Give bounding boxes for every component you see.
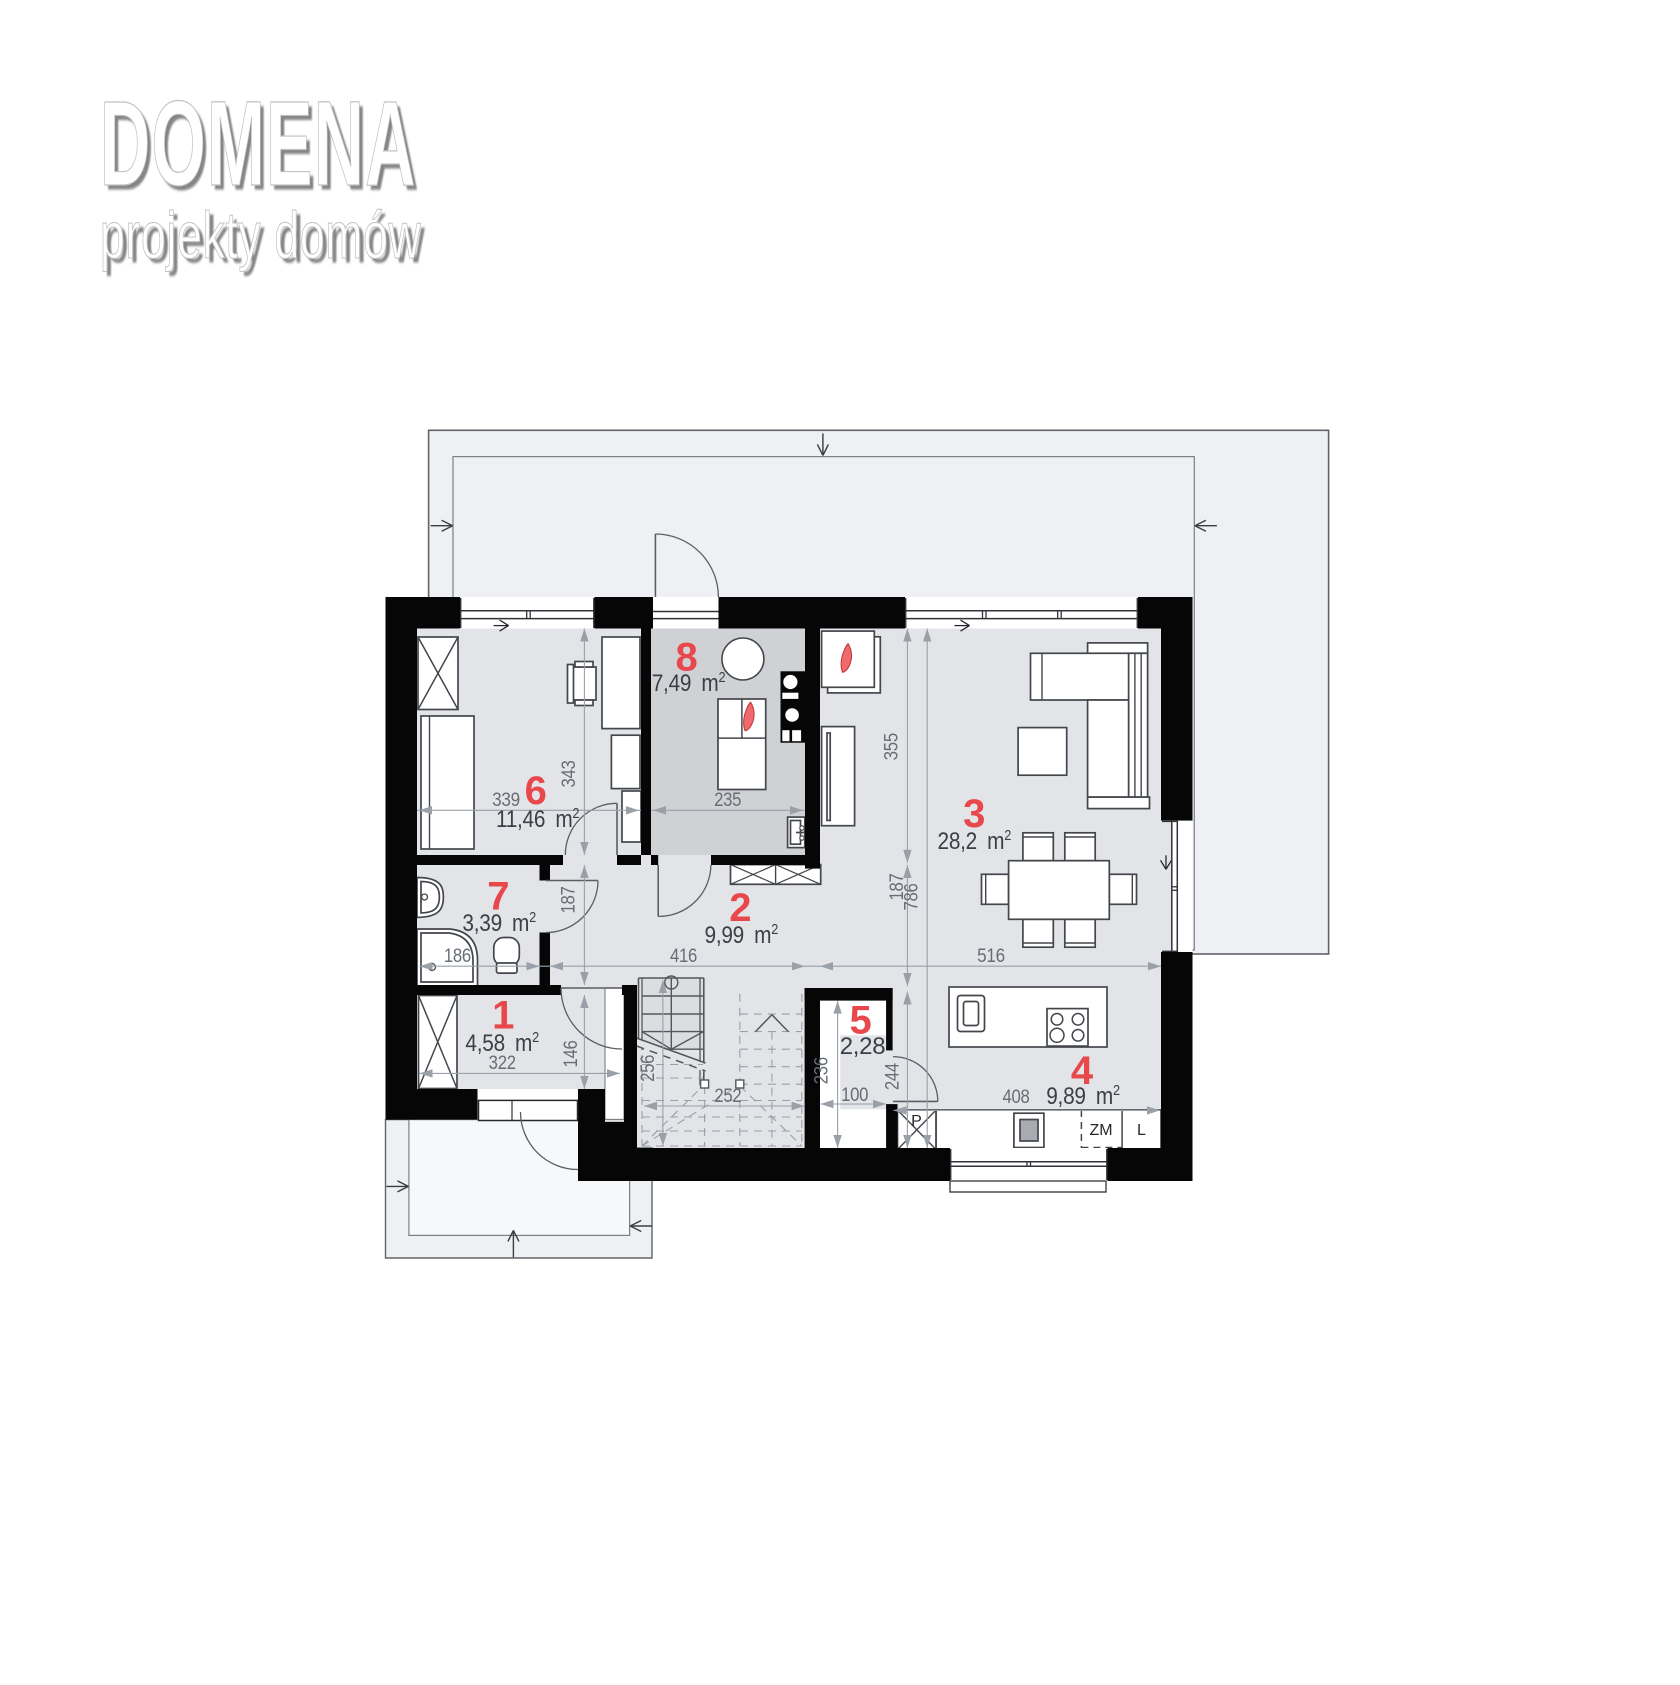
svg-text:786: 786 [901,883,922,910]
svg-text:187: 187 [558,886,579,913]
svg-text:7,49 m2: 7,49 m2 [652,668,726,696]
svg-text:projekty domów: projekty domów [100,198,421,272]
svg-text:244: 244 [882,1063,903,1090]
svg-text:4,58 m2: 4,58 m2 [465,1028,539,1056]
svg-text:256: 256 [637,1055,658,1082]
svg-text:355: 355 [881,733,902,760]
svg-text:408: 408 [1002,1086,1029,1107]
svg-text:186: 186 [444,945,471,966]
svg-text:252: 252 [714,1085,741,1106]
svg-text:9,99 m2: 9,99 m2 [705,920,779,948]
svg-text:516: 516 [977,944,1005,966]
svg-text:DOMENA: DOMENA [100,76,417,211]
svg-text:9,89 m2: 9,89 m2 [1046,1081,1120,1109]
svg-text:3,39 m2: 3,39 m2 [462,908,536,936]
svg-text:343: 343 [558,760,579,787]
svg-text:416: 416 [670,945,697,966]
svg-text:100: 100 [841,1084,868,1105]
svg-text:236: 236 [811,1057,832,1084]
svg-text:28,2 m2: 28,2 m2 [938,826,1012,854]
svg-text:ZM: ZM [1089,1122,1112,1139]
svg-text:P: P [911,1113,922,1130]
svg-text:L: L [1137,1122,1146,1139]
svg-text:146: 146 [560,1040,581,1067]
svg-text:2,28: 2,28 [840,1033,886,1060]
svg-text:11,46 m2: 11,46 m2 [496,804,580,832]
svg-text:235: 235 [714,789,741,810]
